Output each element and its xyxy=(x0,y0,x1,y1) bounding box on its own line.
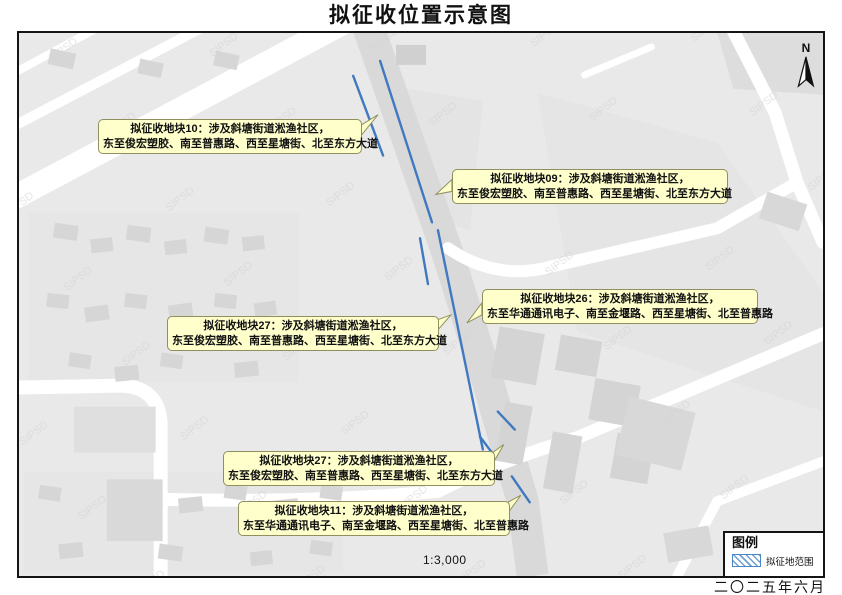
callout-line2: 东至俊宏塑胶、南至普惠路、西至星塘街、北至东方大道 xyxy=(457,187,723,202)
legend-title: 图例 xyxy=(732,535,817,552)
callout-parcel-11: 拟征收地块11：涉及斜塘街道淞渔社区， 东至华通通讯电子、南至金堰路、西至星塘街… xyxy=(238,501,510,536)
callout-line2: 东至俊宏塑胶、南至普惠路、西至星塘街、北至东方大道 xyxy=(103,137,357,152)
callout-line2: 东至华通通讯电子、南至金堰路、西至星塘街、北至普惠路 xyxy=(487,307,753,322)
callout-line1: 拟征收地块27：涉及斜塘街道淞渔社区， xyxy=(172,319,434,334)
map-date: 二〇二五年六月 xyxy=(714,577,826,595)
callout-line2: 东至华通通讯电子、南至金堰路、西至星塘街、北至普惠路 xyxy=(243,519,505,534)
callout-parcel-09: 拟征收地块09：涉及斜塘街道淞渔社区， 东至俊宏塑胶、南至普惠路、西至星塘街、北… xyxy=(452,169,728,204)
page-title: 拟征收位置示意图 xyxy=(0,3,842,28)
callout-line1: 拟征收地块09：涉及斜塘街道淞渔社区， xyxy=(457,172,723,187)
page: 拟征收位置示意图 SIPSD xyxy=(0,0,842,595)
north-label: N xyxy=(791,41,821,55)
scale-text: 1:3,000 xyxy=(423,553,467,567)
map-canvas: SIPSD xyxy=(17,31,825,578)
legend-item: 拟征地范围 xyxy=(732,554,817,568)
callout-line2: 东至俊宏塑胶、南至普惠路、西至星塘街、北至东方大道 xyxy=(228,469,490,484)
callout-parcel-27-lower: 拟征收地块27：涉及斜塘街道淞渔社区， 东至俊宏塑胶、南至普惠路、西至星塘街、北… xyxy=(223,451,495,486)
callout-parcel-26: 拟征收地块26：涉及斜塘街道淞渔社区， 东至华通通讯电子、南至金堰路、西至星塘街… xyxy=(482,289,758,324)
callout-parcel-27-upper: 拟征收地块27：涉及斜塘街道淞渔社区， 东至俊宏塑胶、南至普惠路、西至星塘街、北… xyxy=(167,316,439,351)
callout-line1: 拟征收地块26：涉及斜塘街道淞渔社区， xyxy=(487,292,753,307)
legend-box: 图例 拟征地范围 xyxy=(723,531,823,576)
hatch-swatch-icon xyxy=(732,554,761,567)
callout-line1: 拟征收地块27：涉及斜塘街道淞渔社区， xyxy=(228,454,490,469)
north-arrow: N xyxy=(791,41,821,94)
callout-line2: 东至俊宏塑胶、南至普惠路、西至星塘街、北至东方大道 xyxy=(172,334,434,349)
legend-item-label: 拟征地范围 xyxy=(766,554,814,568)
callout-line1: 拟征收地块11：涉及斜塘街道淞渔社区， xyxy=(243,504,505,519)
callout-parcel-10: 拟征收地块10：涉及斜塘街道淞渔社区， 东至俊宏塑胶、南至普惠路、西至星塘街、北… xyxy=(98,119,362,154)
north-arrow-icon xyxy=(795,55,817,89)
callout-line1: 拟征收地块10：涉及斜塘街道淞渔社区， xyxy=(103,122,357,137)
